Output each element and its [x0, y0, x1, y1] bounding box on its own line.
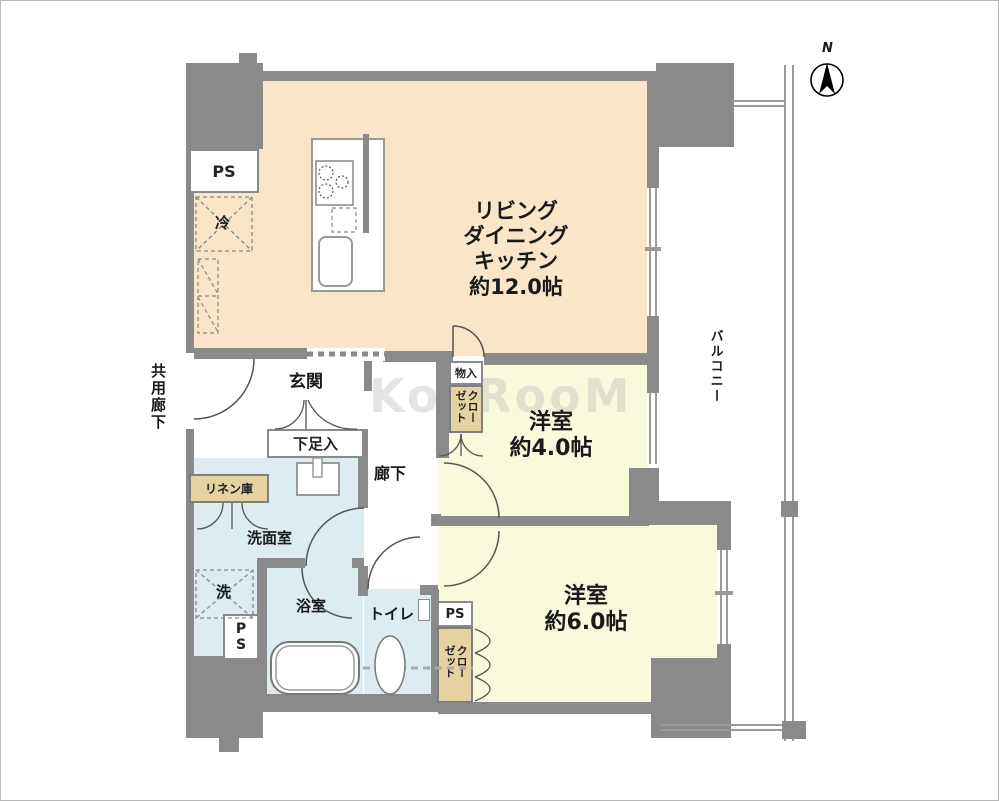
bedroom6-label: 洋室 約6.0帖	[501, 584, 671, 637]
ldk-label-line2: ダイニング	[431, 224, 601, 249]
wall-washroom-corridor-b	[358, 566, 368, 596]
pipe-space-top-label: PS	[212, 162, 235, 181]
balcony-label: バルコニー	[707, 329, 723, 424]
entrance-label: 玄関	[289, 372, 323, 392]
pipe-space-left-label: PS	[233, 621, 249, 653]
pipe-space-bottom-label: PS	[446, 607, 465, 622]
bedroom6-name: 洋室	[501, 584, 671, 610]
washroom-label: 洗面室	[247, 529, 292, 547]
wall-right-ldk-a	[647, 81, 659, 188]
floor-plan: KooRooM PS 下足入 PS PS 物入 リネン庫	[0, 0, 999, 801]
wall-ldk-south-3	[484, 353, 649, 365]
pipe-space-bottom-box: PS	[437, 601, 473, 627]
bathroom-label: 浴室	[296, 597, 326, 615]
ldk-label-line1: リビング	[431, 199, 601, 224]
wall-b4-right-top	[647, 365, 659, 393]
wall-top-right-block	[656, 63, 734, 147]
wall-entry-corridor	[364, 358, 372, 391]
bedroom4-label: 洋室 約4.0帖	[471, 410, 631, 463]
wall-bottom-east	[438, 702, 661, 714]
bedroom4-name: 洋室	[471, 410, 631, 436]
wall-top-left-block	[186, 63, 263, 149]
north-label: N	[822, 41, 833, 57]
wall-b6-right-upper	[717, 525, 731, 550]
wall-b4-b6-divider	[438, 516, 649, 526]
hallway-label: 廊下	[374, 464, 406, 483]
wall-bottom-west	[261, 694, 441, 712]
wall-ldk-south-1	[194, 348, 311, 359]
wall-bottom-right-block	[651, 658, 731, 738]
wall-left-lower	[186, 429, 194, 659]
pipe-space-left-box: PS	[223, 614, 259, 660]
ldk-label: リビング ダイニング キッチン 約12.0帖	[431, 199, 601, 300]
wall-bottom-tab	[219, 738, 239, 752]
ldk-label-size: 約12.0帖	[431, 275, 601, 300]
shoe-cabinet-box: 下足入	[267, 429, 364, 458]
shoe-cabinet-label: 下足入	[293, 433, 338, 454]
wall-notch-top	[239, 53, 257, 65]
bedroom4-size: 約4.0帖	[471, 436, 631, 462]
closet-lower-box: クローゼット	[437, 627, 473, 703]
closet-lower-label: クローゼット	[443, 645, 467, 685]
wall-storage-column	[436, 358, 449, 458]
washer-label: 洗	[216, 583, 231, 601]
north-compass-icon	[811, 63, 843, 96]
genkan-cabinet-fans	[275, 400, 357, 429]
storage-label: 物入	[455, 365, 477, 381]
wall-b6-topright	[649, 501, 731, 525]
bedroom6-size: 約6.0帖	[501, 610, 671, 636]
wall-b6-right-lower	[717, 644, 731, 660]
wall-b4-corner-block	[629, 468, 659, 518]
refrigerator-label: 冷	[215, 214, 230, 232]
wall-top	[261, 71, 659, 81]
ldk-label-line3: キッチン	[431, 249, 601, 274]
wall-bottom-left-block	[186, 656, 263, 738]
common-corridor-label: 共用廊下	[149, 363, 167, 478]
linen-closet-label: リネン庫	[205, 480, 253, 497]
pipe-space-top-box: PS	[189, 149, 259, 193]
wall-bath-top-west	[263, 558, 305, 568]
railing-post-mid	[781, 501, 798, 517]
wall-bath-top-east	[352, 558, 364, 568]
toilet-shelf	[418, 599, 430, 621]
bathroom-floor	[263, 558, 363, 704]
storage-box: 物入	[449, 361, 483, 385]
wall-corridor-right-mid	[431, 514, 441, 526]
toilet-door-arc	[368, 537, 420, 589]
entry-door-arc	[194, 359, 254, 419]
railing-post-bottom	[782, 721, 806, 739]
toilet-label: トイレ	[369, 605, 414, 623]
linen-closet-box: リネン庫	[189, 474, 269, 503]
